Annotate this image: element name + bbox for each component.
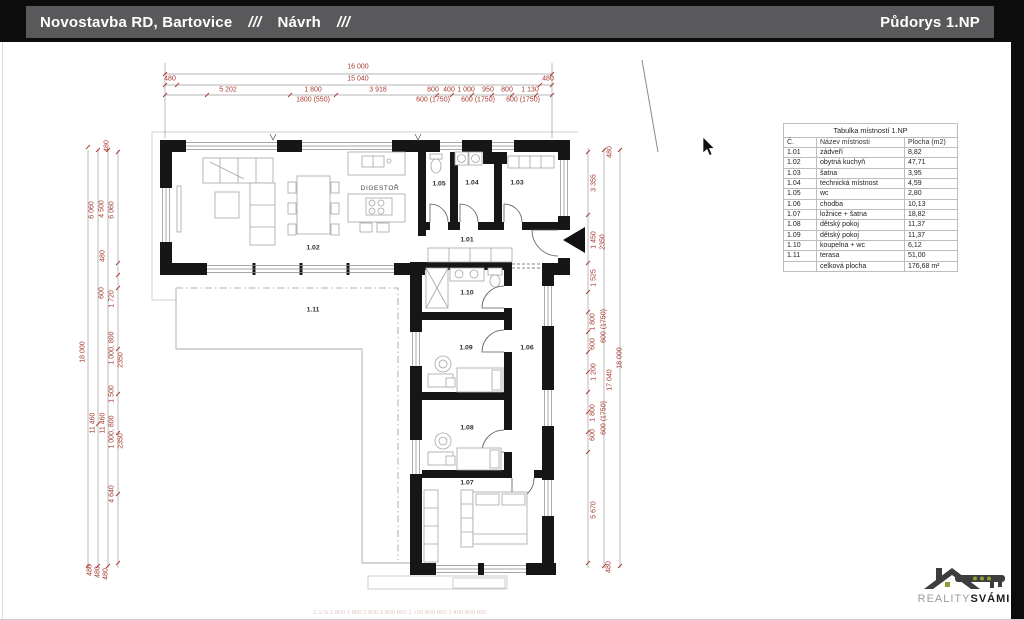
kids-room-2-furniture	[428, 433, 501, 470]
title-separator: ///	[248, 14, 261, 31]
logo-graphic	[924, 568, 1005, 589]
room-table-body: Tabulka místností 1.NP Č. Název místnost…	[784, 124, 958, 272]
room-table-title: Tabulka místností 1.NP	[784, 124, 958, 138]
room-table-col-area: Plocha (m2)	[905, 137, 958, 147]
right-black-border	[1011, 0, 1024, 620]
entry-hall-furniture	[428, 248, 512, 262]
mouse-cursor	[703, 137, 715, 156]
entrance-arrow	[563, 227, 585, 253]
table-row: 1.03šatna3,95	[784, 168, 958, 178]
table-row: celková plocha176,68 m²	[784, 261, 958, 271]
floorplan-svg	[0, 0, 1024, 620]
title-bar: Novostavba RD, Bartovice /// Návrh /// P…	[26, 6, 994, 38]
bedroom-furniture	[424, 490, 527, 562]
screenshot-stage: 16 00048015 0404805 2021 8003 9188004001…	[0, 0, 1024, 620]
project-title: Novostavba RD, Bartovice	[40, 14, 232, 31]
pocket-door	[512, 264, 542, 268]
terrace-edge	[176, 288, 410, 563]
terrace-overhang-line	[176, 288, 398, 560]
room-table-col-name: Název místnosti	[817, 137, 905, 147]
dimension-lines	[88, 63, 620, 568]
table-row: 1.04technická místnost4,59	[784, 178, 958, 188]
site-lines	[152, 60, 658, 589]
room-table-col-number: Č.	[784, 137, 817, 147]
wc-fixtures	[430, 154, 442, 173]
title-separator: ///	[337, 14, 350, 31]
drawing-name: Půdorys 1.NP	[880, 14, 980, 31]
table-row: 1.08dětský pokoj11,37	[784, 220, 958, 230]
room-table: Tabulka místností 1.NP Č. Název místnost…	[783, 123, 958, 272]
table-row: 1.01zádveří8,82	[784, 147, 958, 157]
left-border-line	[2, 42, 3, 620]
table-row: 1.09dětský pokoj11,37	[784, 230, 958, 240]
table-row: 1.11terasa51,00	[784, 251, 958, 261]
table-row: 1.07ložnice + šatna18,82	[784, 209, 958, 219]
table-row: 1.02obytná kuchyň47,71	[784, 158, 958, 168]
table-row: 1.10koupelna + wc6,12	[784, 241, 958, 251]
technical-room-fixtures	[455, 152, 482, 165]
logo-wordmark: REALITYSVÁMI	[916, 593, 1012, 605]
bathroom-fixtures	[426, 268, 502, 308]
kids-room-1-furniture	[428, 356, 503, 392]
table-row: 1.06chodba10,13	[784, 199, 958, 209]
table-row: 1.05wc2,80	[784, 189, 958, 199]
drawing-stage: Návrh	[277, 14, 321, 31]
window-axis-marks	[270, 134, 421, 140]
closet-shelves	[508, 156, 554, 168]
title-bar-backdrop: Novostavba RD, Bartovice /// Návrh /// P…	[0, 0, 1024, 42]
logo-text-reality: REALITY	[918, 593, 971, 605]
living-room-furniture	[177, 152, 405, 245]
logo-text-svami: SVÁMI	[971, 593, 1011, 605]
